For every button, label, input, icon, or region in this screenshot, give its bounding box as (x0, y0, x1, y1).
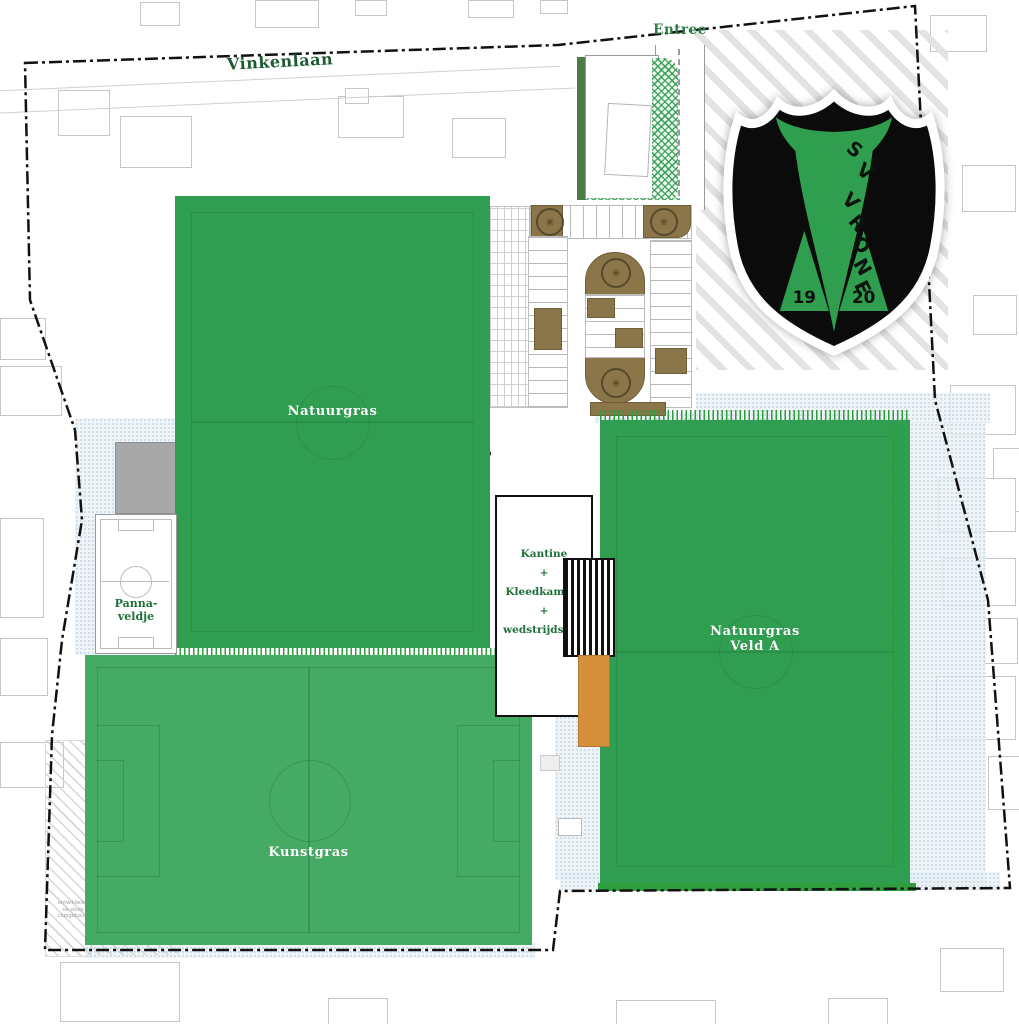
small-structure (558, 818, 582, 836)
building-outline (0, 518, 44, 618)
hedge (600, 410, 910, 420)
building-outline (940, 948, 1004, 992)
building-outline (255, 0, 319, 28)
hedge (598, 883, 916, 891)
planting-island (587, 298, 615, 318)
building-outline (962, 165, 1016, 212)
field-label: Natuurgras (175, 404, 490, 419)
building-outline (540, 0, 568, 14)
field-label-line: Natuurgras (600, 624, 910, 639)
tree-icon: ✳ (650, 208, 678, 236)
small-structure (540, 755, 560, 771)
street-vinkenlaan-label: Vinkenlaan (195, 48, 366, 76)
parking-lot: ✳ ✳ ✳ ✳ (478, 200, 696, 412)
building-outline (973, 295, 1017, 335)
terrace (578, 655, 610, 747)
entrance-building (585, 55, 659, 202)
planting-island (534, 308, 562, 350)
field-marking (493, 760, 520, 842)
field-marking (97, 760, 124, 842)
logo-year-right: 20 (852, 287, 875, 307)
panna-veldje: Panna- veldje (95, 514, 177, 654)
hedge (888, 425, 900, 865)
logo-year-left: 19 (793, 287, 816, 307)
site-plan: ontwikkelen na sloop clubgebouw ✳ ✳ ✳ ✳ (0, 0, 1019, 1024)
field-label: Panna- veldje (96, 597, 176, 623)
planting-island (655, 348, 687, 374)
club-logo: S V V R O N E 19 20 (703, 76, 965, 360)
building-outline (328, 998, 388, 1024)
building-outline (828, 998, 888, 1024)
tree-row-strip (577, 57, 585, 207)
building-outline (0, 638, 48, 696)
building-outline (0, 318, 46, 360)
tribune-stand (563, 558, 615, 657)
building-outline (452, 118, 506, 158)
hedge (652, 58, 678, 203)
field-label: Kunstgras (85, 845, 532, 860)
building-outline (988, 756, 1019, 810)
building-outline (616, 1000, 716, 1024)
building-outline (468, 0, 514, 18)
field-marking (118, 519, 154, 531)
building-outline (140, 2, 180, 26)
club-logo-shield: S V V R O N E 19 20 (703, 76, 965, 360)
field-label-line: Panna- (96, 597, 176, 610)
building-outline (984, 618, 1018, 664)
dotted-landscape-area (75, 515, 97, 655)
field-marking (118, 637, 154, 649)
building-outline (604, 103, 652, 177)
field-marking (296, 386, 370, 460)
tree-icon: ✳ (601, 368, 631, 398)
dotted-landscape-area (898, 423, 986, 885)
planting-island (615, 328, 643, 348)
field-natuurgras: Natuurgras (175, 196, 490, 648)
field-marking (120, 566, 152, 598)
building-outline (58, 90, 110, 136)
street-entree-label: Entree (640, 22, 720, 38)
field-label-line: Veld A (600, 639, 910, 654)
building-outline (60, 962, 180, 1022)
field-natuurgras-veld-a: Natuurgras Veld A (600, 420, 910, 883)
building-outline (355, 0, 387, 16)
tree-icon: ✳ (536, 208, 564, 236)
road-center-line (678, 49, 680, 206)
building-outline (120, 116, 192, 168)
field-marking (269, 760, 351, 842)
field-kunstgras: Kunstgras (85, 655, 532, 945)
field-label-line: veldje (96, 610, 176, 623)
paved-storage-area (115, 442, 180, 514)
building-outline (0, 366, 62, 416)
parking-stalls (650, 240, 692, 408)
tree-icon: ✳ (601, 258, 631, 288)
field-label: Natuurgras Veld A (600, 624, 910, 654)
